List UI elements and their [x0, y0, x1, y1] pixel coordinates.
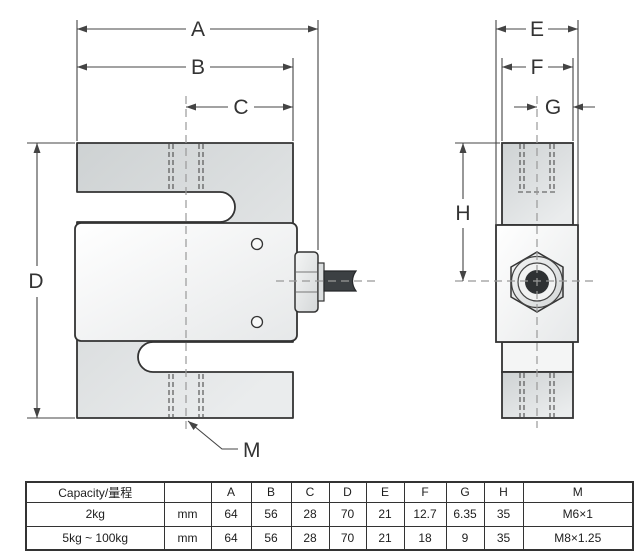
dim-label-B: B	[191, 56, 205, 79]
dim-label-C: C	[233, 96, 248, 119]
cell-D: 70	[329, 526, 366, 550]
dim-label-E: E	[530, 18, 544, 41]
header-D: D	[329, 482, 366, 502]
cell-A: 64	[211, 502, 251, 526]
header-unit	[164, 482, 211, 502]
cell-F: 12.7	[404, 502, 446, 526]
cell-H: 35	[484, 502, 523, 526]
header-A: A	[211, 482, 251, 502]
cell-M: M8×1.25	[523, 526, 633, 550]
dim-label-G: G	[545, 96, 561, 119]
header-M: M	[523, 482, 633, 502]
screw-hole-bottom	[252, 317, 263, 328]
dim-label-F: F	[531, 56, 544, 79]
header-capacity: Capacity/量程	[26, 482, 164, 502]
table-header-row: Capacity/量程 A B C D E F G H M	[26, 482, 633, 502]
cell-C: 28	[291, 526, 329, 550]
header-H: H	[484, 482, 523, 502]
cell-G: 6.35	[446, 502, 484, 526]
cell-capacity: 5kg ~ 100kg	[26, 526, 164, 550]
screw-hole-top	[252, 239, 263, 250]
dim-label-M: M	[243, 439, 261, 462]
dimension-B	[77, 58, 293, 141]
load-cell-dimension-sheet: A B C D	[0, 0, 643, 557]
technical-drawing: A B C D	[0, 0, 643, 481]
header-C: C	[291, 482, 329, 502]
cell-B: 56	[251, 502, 291, 526]
header-G: G	[446, 482, 484, 502]
header-F: F	[404, 482, 446, 502]
dimension-spec-table: Capacity/量程 A B C D E F G H M 2kg mm 64 …	[25, 481, 634, 551]
cell-H: 35	[484, 526, 523, 550]
cell-C: 28	[291, 502, 329, 526]
side-view: E F G H	[455, 18, 595, 428]
cell-unit: mm	[164, 502, 211, 526]
cell-E: 21	[366, 502, 404, 526]
cell-M: M6×1	[523, 502, 633, 526]
table-row-5-100kg: 5kg ~ 100kg mm 64 56 28 70 21 18 9 35 M8…	[26, 526, 633, 550]
dim-label-H: H	[455, 202, 470, 225]
table-row-2kg: 2kg mm 64 56 28 70 21 12.7 6.35 35 M6×1	[26, 502, 633, 526]
dim-label-D: D	[28, 270, 43, 293]
header-B: B	[251, 482, 291, 502]
cell-G: 9	[446, 526, 484, 550]
header-E: E	[366, 482, 404, 502]
cell-F: 18	[404, 526, 446, 550]
cable-gland	[295, 252, 356, 312]
front-view: A B C D	[27, 18, 378, 462]
cell-A: 64	[211, 526, 251, 550]
cell-D: 70	[329, 502, 366, 526]
cell-E: 21	[366, 526, 404, 550]
cell-unit: mm	[164, 526, 211, 550]
cell-capacity: 2kg	[26, 502, 164, 526]
cell-B: 56	[251, 526, 291, 550]
dim-label-A: A	[191, 18, 205, 41]
thread-callout-M	[188, 421, 238, 449]
